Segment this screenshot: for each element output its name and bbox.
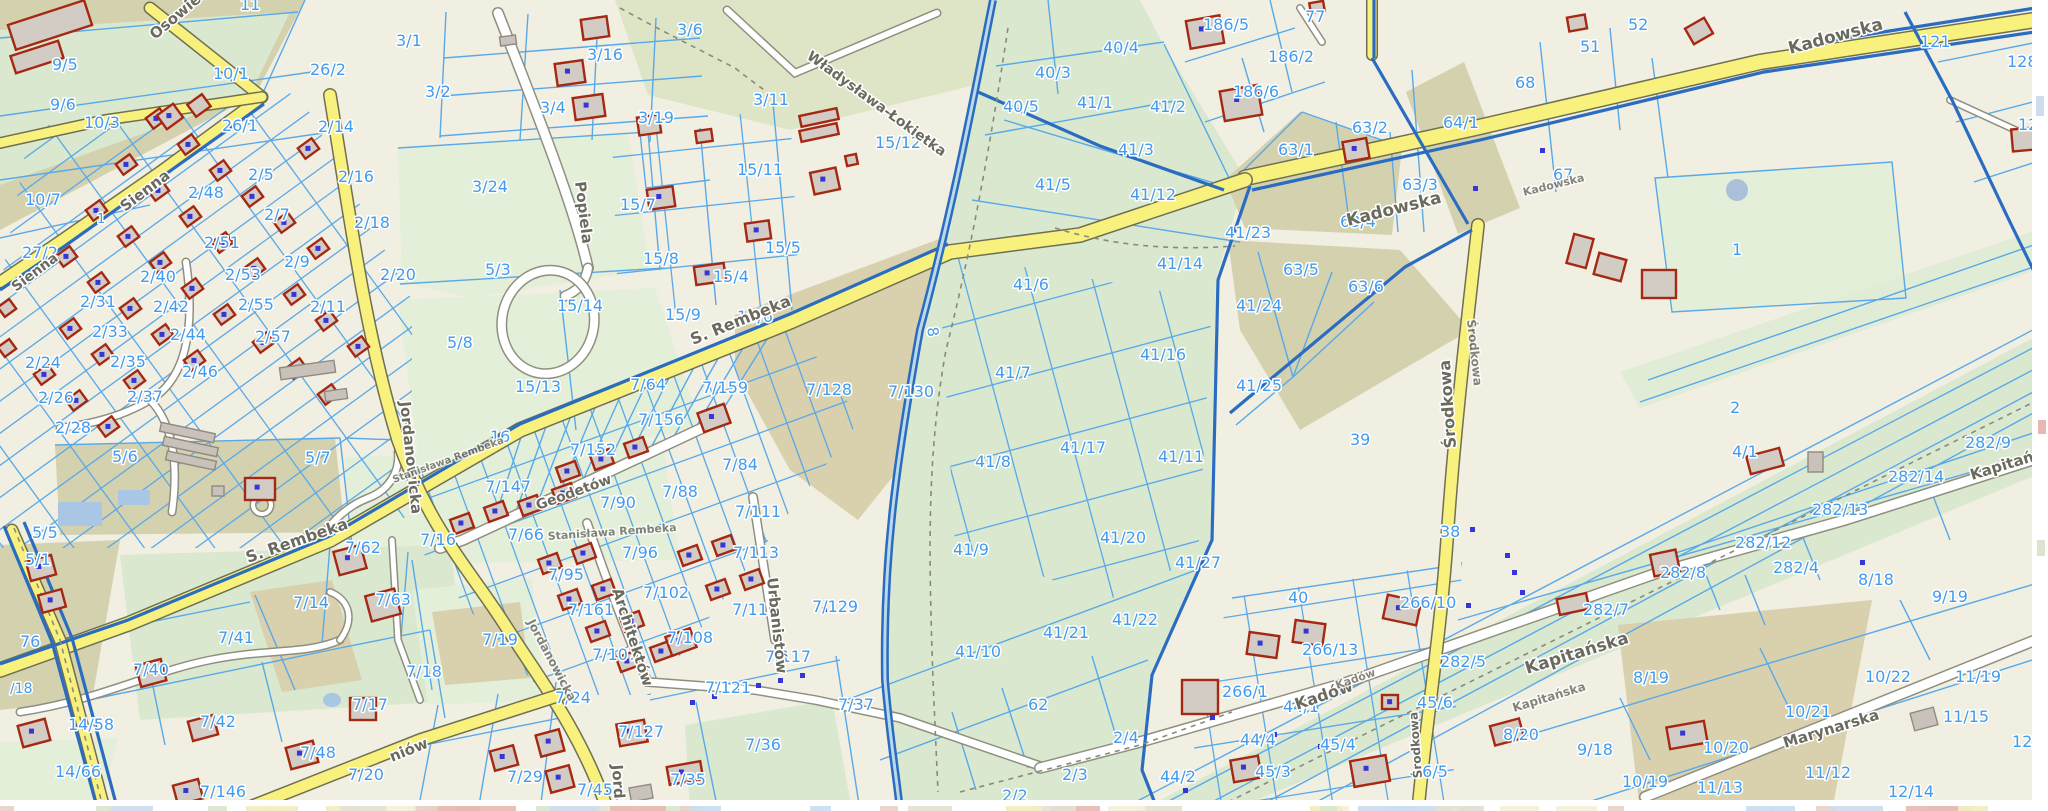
- parcel-label: 10/21: [1785, 702, 1831, 721]
- parcel-label: 7/95: [548, 565, 584, 584]
- parcel-label: 10/1: [213, 64, 249, 83]
- parcel-label: 2/53: [225, 265, 261, 284]
- parcel-label: 10/20: [1703, 738, 1749, 757]
- parcel-label: 15/9: [665, 305, 701, 324]
- parcel-label: 7/130: [888, 382, 934, 401]
- address-dot: [709, 414, 714, 419]
- address-dot: [526, 503, 531, 508]
- parcel-label: 41/10: [955, 642, 1001, 661]
- parcel-label: 2/20: [380, 265, 416, 284]
- parcel-label: 2/5: [248, 165, 274, 184]
- parcel-label: 2/57: [255, 327, 291, 346]
- address-dot: [1304, 629, 1309, 634]
- parcel-label: 2/9: [284, 252, 310, 271]
- address-dot: [658, 649, 663, 654]
- tile-fragment: [270, 806, 298, 811]
- parcel-label: 282/14: [1888, 467, 1944, 486]
- address-dot: [249, 194, 254, 199]
- address-dot: [217, 168, 222, 173]
- parcel-label: 2/48: [188, 183, 224, 202]
- parcel-label: 7/152: [570, 440, 616, 459]
- address-dot: [1241, 765, 1246, 770]
- parcel-label: 44/2: [1160, 767, 1196, 786]
- parcel-label: 41/17: [1060, 438, 1106, 457]
- parcel-label: 2/4: [1113, 728, 1139, 747]
- parcel-label: 7/19: [482, 630, 518, 649]
- parcel-label: 2/7: [264, 205, 290, 224]
- tile-fragment: [1958, 806, 1988, 811]
- tile-fragment: [208, 806, 227, 811]
- parcel-label: 76: [20, 632, 40, 651]
- tile-fragment: [110, 806, 153, 811]
- parcel-label: 15/11: [737, 160, 783, 179]
- address-dot: [187, 214, 192, 219]
- parcel-label: 41/1: [1077, 93, 1113, 112]
- parcel-label: 4/1: [1732, 442, 1758, 461]
- tile-fragment: [1320, 806, 1337, 811]
- parcel-label: 10/7: [25, 190, 61, 209]
- parcel-label: 7/40: [133, 660, 169, 679]
- parcel-label: 2/18: [354, 213, 390, 232]
- parcel-label: 52: [1628, 15, 1648, 34]
- address-dot: [105, 424, 110, 429]
- parcel-label: 7/41: [218, 628, 254, 647]
- tile-fragment: [1108, 806, 1145, 811]
- parcel-label: 15/14: [557, 296, 603, 315]
- tile-fragment: [610, 806, 666, 811]
- parcel-label: 10/19: [1622, 772, 1668, 791]
- parcel-label: 282/8: [1660, 563, 1706, 582]
- parcel-label: 186/2: [1268, 47, 1314, 66]
- tile-fragment: [246, 806, 272, 811]
- tile-fragment: [908, 806, 952, 811]
- tile-fragment: [96, 806, 111, 811]
- building: [1182, 680, 1218, 714]
- parcel-label: 11: [240, 0, 260, 14]
- address-dot: [1512, 570, 1517, 575]
- parcel-label: 2/28: [55, 418, 91, 437]
- parcel-label: 7/96: [622, 543, 658, 562]
- parcel-label: /18: [10, 681, 33, 697]
- parcel-label: 15/8: [643, 249, 679, 268]
- address-dot: [705, 270, 710, 275]
- parcel-label: 44/4: [1240, 730, 1276, 749]
- parcel-label: 7/35: [670, 770, 706, 789]
- address-dot: [63, 254, 68, 259]
- parcel-label: 7/84: [722, 455, 758, 474]
- building: [1642, 270, 1676, 298]
- parcel-label: 2/24: [25, 353, 61, 372]
- parcel-label: 41/2: [1150, 97, 1186, 116]
- parcel-label: 64/1: [1443, 113, 1479, 132]
- parcel-label: 2: [1730, 398, 1740, 417]
- parcel-label: 63/2: [1352, 118, 1388, 137]
- address-dot: [41, 372, 46, 377]
- tile-fragment: [0, 806, 14, 811]
- parcel-label: 39: [1350, 430, 1370, 449]
- address-dot: [1258, 641, 1263, 646]
- address-dot: [584, 103, 589, 108]
- parcel-label: 5/6: [112, 447, 138, 466]
- address-dot: [546, 739, 551, 744]
- address-dot: [778, 678, 783, 683]
- address-dot: [185, 142, 190, 147]
- parcel-label: 63/5: [1283, 260, 1319, 279]
- parcel-label: 40: [1288, 588, 1308, 607]
- building: [573, 94, 606, 120]
- parcel-label: 11/19: [1955, 667, 2001, 686]
- parcel-label: 186/6: [1233, 82, 1279, 101]
- parcel-label: 2/26: [38, 388, 74, 407]
- building: [581, 16, 610, 39]
- address-dot: [221, 312, 226, 317]
- address-dot: [1470, 527, 1475, 532]
- address-dot: [127, 306, 132, 311]
- tile-fragment: [1906, 806, 1958, 811]
- address-dot: [99, 352, 104, 357]
- tile-fragment: [1830, 806, 1883, 811]
- parcel-label: 26/2: [310, 60, 346, 79]
- parcel-label: 2/44: [170, 325, 206, 344]
- parcel-label: 41/8: [975, 452, 1011, 471]
- address-dot: [1473, 186, 1478, 191]
- tile-fragment: [690, 806, 721, 811]
- parcel-label: 63/1: [1278, 140, 1314, 159]
- address-dot: [125, 234, 130, 239]
- parcel-label: 5/8: [447, 333, 473, 352]
- parcel-label: 8/20: [1503, 725, 1539, 744]
- building: [1567, 15, 1587, 32]
- parcel-label: 2/33: [92, 322, 128, 341]
- address-dot: [580, 551, 585, 556]
- parcel-label: 5/7: [305, 448, 331, 467]
- parcel-label: 9/18: [1577, 740, 1613, 759]
- parcel-label: 7/147: [485, 477, 531, 496]
- tile-fragment: [416, 806, 438, 811]
- tile-fragment: [458, 806, 516, 811]
- parcel-label: 266/1: [1222, 682, 1268, 701]
- building: [845, 154, 858, 166]
- parcel-label: 7/20: [348, 765, 384, 784]
- address-dot: [748, 577, 753, 582]
- address-dot: [800, 673, 805, 678]
- parcel-label: 41/11: [1158, 447, 1204, 466]
- address-dot: [1183, 788, 1188, 793]
- address-dot: [686, 553, 691, 558]
- parcel-label: 41/22: [1112, 610, 1158, 629]
- address-dot: [166, 113, 171, 118]
- parcel-label: 45/4: [1320, 735, 1356, 754]
- address-dot: [1680, 731, 1685, 736]
- address-dot: [600, 587, 605, 592]
- address-dot: [1387, 699, 1392, 704]
- tile-fragment: [1770, 806, 1795, 811]
- parcel-label: 68: [1515, 73, 1535, 92]
- parcel-label: 41/9: [953, 540, 989, 559]
- parcel-label: 282/12: [1735, 533, 1791, 552]
- parcel-label: 7/18: [406, 662, 442, 681]
- building: [695, 129, 713, 143]
- parcel-label: 9/6: [50, 95, 76, 114]
- parcel-label: 14/66: [55, 762, 101, 781]
- tile-fragment: [810, 806, 831, 811]
- building: [245, 478, 275, 500]
- parcel-label: 7/63: [375, 590, 411, 609]
- address-dot: [48, 597, 53, 602]
- parcel-label: 15/13: [515, 377, 561, 396]
- parcel-label: 10/3: [84, 113, 120, 132]
- pond: [118, 490, 150, 505]
- tile-fragment: [2038, 420, 2046, 434]
- parcel-label: 41/6: [1013, 275, 1049, 294]
- parcel-label: 41/5: [1035, 175, 1071, 194]
- tile-fragment: [1436, 806, 1484, 811]
- parcel-label: 3/6: [677, 20, 703, 39]
- parcel-label: 7/108: [667, 628, 713, 647]
- parcel-label: 3/1: [396, 31, 422, 50]
- address-dot: [95, 280, 100, 285]
- parcel-label: 7/48: [300, 743, 336, 762]
- parcel-label: 38: [1440, 522, 1460, 541]
- tile-fragment: [340, 806, 386, 811]
- address-dot: [159, 332, 164, 337]
- parcel-label: 40/5: [1003, 97, 1039, 116]
- parcel-label: 11/13: [1697, 778, 1743, 797]
- address-dot: [1520, 590, 1525, 595]
- address-dot: [255, 485, 260, 490]
- address-dot: [1364, 766, 1369, 771]
- parcel-label: 8/19: [1633, 668, 1669, 687]
- parcel-label: 41/27: [1175, 553, 1221, 572]
- address-dot: [157, 260, 162, 265]
- parcel-label: 266/10: [1400, 593, 1456, 612]
- building: [629, 784, 653, 802]
- parcel-label: 282/4: [1773, 558, 1819, 577]
- parcel-label: 2/37: [127, 387, 163, 406]
- parcel-label: 2/3: [1062, 765, 1088, 784]
- parcel-label: 10/22: [1865, 667, 1911, 686]
- parcel-label: 7/36: [745, 735, 781, 754]
- parcel-label: 282/5: [1440, 652, 1486, 671]
- parcel-label: 7/88: [662, 482, 698, 501]
- parcel-label: 7/129: [812, 597, 858, 616]
- parcel-label: 41/14: [1157, 254, 1203, 273]
- address-dot: [1505, 553, 1510, 558]
- parcel-label: 9/19: [1932, 587, 1968, 606]
- parcel-label: 282/9: [1965, 433, 2011, 452]
- parcel-label: 2/40: [140, 267, 176, 286]
- tile-fragment: [2036, 96, 2044, 116]
- address-dot: [1466, 603, 1471, 608]
- parcel-label: 7/127: [618, 722, 664, 741]
- parcel-label: 7/66: [508, 525, 544, 544]
- parcel-label: 45/6: [1417, 693, 1453, 712]
- parcel-label: 2/42: [153, 297, 189, 316]
- parcel-label: 41/3: [1118, 140, 1154, 159]
- parcel-label: 15/7: [620, 195, 656, 214]
- parcel-label: 41/25: [1236, 376, 1282, 395]
- parcel-label: 41/16: [1140, 345, 1186, 364]
- address-dot: [720, 543, 725, 548]
- address-dot: [690, 700, 695, 705]
- parcel-label: 3/24: [472, 177, 508, 196]
- tile-fragment: [1746, 806, 1773, 811]
- parcel-label: 7/111: [735, 502, 781, 521]
- building: [324, 389, 347, 402]
- parcel-label: 7/29: [507, 767, 543, 786]
- parcel-label: 15/4: [713, 267, 749, 286]
- parcel-label: 1: [1732, 240, 1742, 259]
- parcel-label: 11/12: [1805, 763, 1851, 782]
- parcel-label: 12/14: [1888, 782, 1934, 801]
- address-dot: [67, 326, 72, 331]
- address-dot: [1210, 715, 1215, 720]
- parcel-label: 7/159: [702, 378, 748, 397]
- parcel-label: 121: [1920, 32, 1951, 51]
- parcel-label: 282/13: [1812, 500, 1868, 519]
- parcel-label: 41/20: [1100, 528, 1146, 547]
- parcel-label: 2/31: [80, 292, 116, 311]
- pond: [58, 502, 102, 526]
- tile-fragment: [550, 806, 599, 811]
- parcel-label: 7/113: [733, 543, 779, 562]
- parcel-label: 3/16: [587, 45, 623, 64]
- parcel-label: 282/7: [1583, 600, 1629, 619]
- building: [1350, 755, 1390, 787]
- parcel-label: 2/16: [338, 167, 374, 186]
- parcel-label: 41/7: [995, 363, 1031, 382]
- parcel-label: 7/128: [806, 380, 852, 399]
- parcel-label: 77: [1305, 7, 1325, 26]
- parcel-label: 40/4: [1103, 38, 1139, 57]
- building: [499, 35, 516, 46]
- parcel-label: 7/42: [200, 712, 236, 731]
- address-dot: [305, 146, 310, 151]
- address-dot: [632, 445, 637, 450]
- tile-fragment: [1556, 806, 1597, 811]
- address-dot: [315, 246, 320, 251]
- address-dot: [594, 629, 599, 634]
- tile-fragment: [1500, 806, 1539, 811]
- parcel-label: 1: [97, 212, 105, 227]
- parcel-label: 7/17: [352, 695, 388, 714]
- address-dot: [123, 162, 128, 167]
- building: [1247, 632, 1280, 658]
- address-dot: [656, 194, 661, 199]
- address-dot: [756, 683, 761, 688]
- map-viewport[interactable]: 113/19/59/610/126/226/110/32/1410/72/52/…: [0, 0, 2048, 811]
- address-dot: [1860, 560, 1865, 565]
- parcel-label: 41/21: [1043, 623, 1089, 642]
- parcel-label: 7/45: [577, 780, 613, 799]
- parcel-label: 41/12: [1130, 185, 1176, 204]
- address-dot: [556, 775, 561, 780]
- parcel-label: 62: [1028, 695, 1048, 714]
- parcel-label: 186/5: [1203, 15, 1249, 34]
- cadastral-map[interactable]: 113/19/59/610/126/226/110/32/1410/72/52/…: [0, 0, 2048, 811]
- parcel-label: 2/35: [110, 352, 146, 371]
- parcel-label: 40/3: [1035, 63, 1071, 82]
- address-dot: [189, 286, 194, 291]
- parcel-label: 8/18: [1858, 570, 1894, 589]
- parcel-label: 15/5: [765, 238, 801, 257]
- parcel-label: 2/46: [182, 362, 218, 381]
- address-dot: [714, 587, 719, 592]
- address-dot: [1540, 148, 1545, 153]
- parcel-label: 7/121: [705, 678, 751, 697]
- building: [1808, 452, 1823, 472]
- parcel-label: 3/19: [638, 108, 674, 127]
- tile-fragment: [1006, 806, 1042, 811]
- parcel-label: 41/24: [1236, 296, 1282, 315]
- address-dot: [291, 292, 296, 297]
- address-dot: [355, 344, 360, 349]
- address-dot: [500, 754, 505, 759]
- parcel-label: 26/1: [222, 116, 258, 135]
- parcel-label: 14/58: [68, 715, 114, 734]
- address-dot: [323, 318, 328, 323]
- address-dot: [183, 788, 188, 793]
- parcel-label: 7/156: [638, 410, 684, 429]
- address-dot: [754, 227, 759, 232]
- parcel-label: 3/2: [425, 82, 451, 101]
- building: [212, 486, 224, 496]
- parcel-label: 7/62: [345, 538, 381, 557]
- parcel-label: 7/146: [200, 782, 246, 801]
- pond: [1726, 179, 1748, 201]
- parcel-label: 5/5: [32, 523, 58, 542]
- parcel-label: 2/14: [318, 117, 354, 136]
- address-dot: [29, 729, 34, 734]
- parcel-label: 5/3: [485, 260, 511, 279]
- parcel-label: 7/64: [630, 375, 666, 394]
- tile-fragment: [1608, 806, 1624, 811]
- parcel-label: 3/11: [753, 90, 789, 109]
- tile-fragment: [2037, 540, 2045, 556]
- tile-fragment: [880, 806, 898, 811]
- parcel-label: 266/13: [1302, 640, 1358, 659]
- parcel-label: 9/5: [52, 55, 78, 74]
- tile-fragment: [1140, 806, 1182, 811]
- parcel-label: 63/6: [1348, 277, 1384, 296]
- address-dot: [820, 177, 825, 182]
- building: [555, 60, 586, 86]
- tile-fragment: [1386, 806, 1415, 811]
- tile-edge-right: [2032, 0, 2048, 811]
- parcel-label: 7/90: [600, 493, 636, 512]
- address-dot: [565, 69, 570, 74]
- parcel-label: 11/15: [1943, 707, 1989, 726]
- parcel-label: 7/16: [420, 530, 456, 549]
- parcel-label: 3/4: [540, 98, 566, 117]
- address-dot: [131, 378, 136, 383]
- address-dot: [73, 398, 78, 403]
- parcel-label: 7/161: [568, 600, 614, 619]
- address-dot: [458, 521, 463, 526]
- pond: [323, 693, 341, 707]
- address-dot: [1352, 146, 1357, 151]
- parcel-label: 2/55: [238, 295, 274, 314]
- parcel-label: 51: [1580, 37, 1600, 56]
- parcel-label: 5/1: [25, 550, 51, 569]
- address-dot: [564, 469, 569, 474]
- parcel-label: 7/37: [838, 695, 874, 714]
- parcel-label: 41/23: [1225, 223, 1271, 242]
- address-dot: [492, 509, 497, 514]
- parcel-label: 2/11: [310, 297, 346, 316]
- parcel-label: 45/3: [1255, 762, 1291, 781]
- parcel-label: 7/102: [643, 583, 689, 602]
